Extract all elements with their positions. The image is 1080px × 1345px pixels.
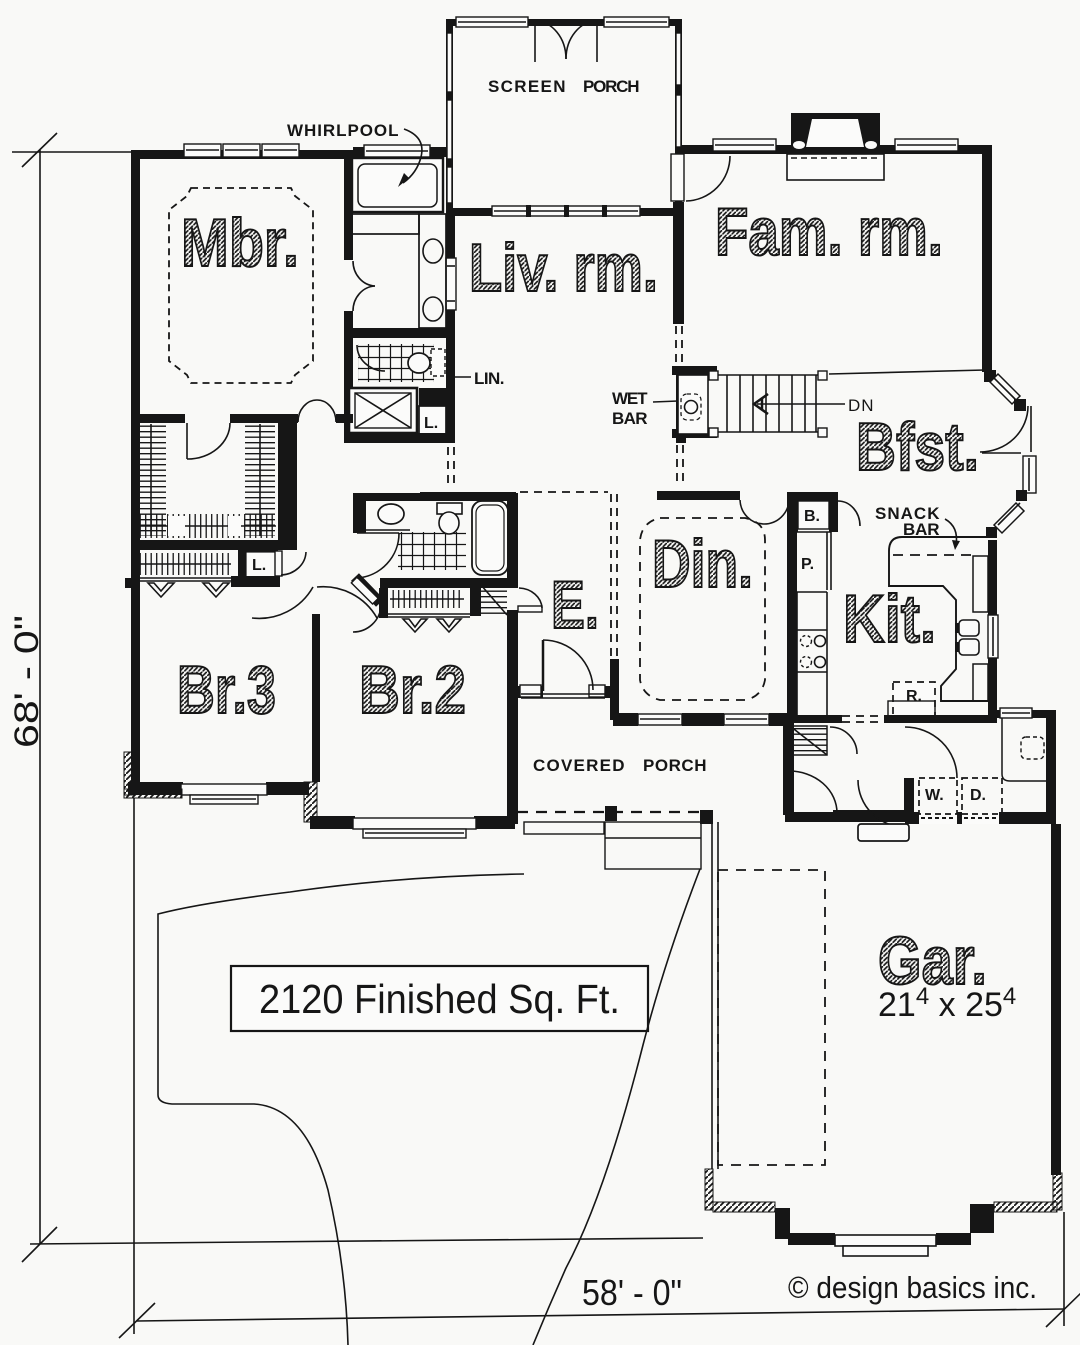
svg-text:Br.3: Br.3 [177,652,276,728]
svg-text:E.: E. [551,567,599,643]
svg-text:WET: WET [612,389,650,408]
svg-text:Liv. rm.: Liv. rm. [469,230,658,306]
svg-text:W.: W. [925,787,944,804]
svg-text:D.: D. [970,787,986,804]
svg-text:68' - 0": 68' - 0" [8,615,46,748]
svg-text:LIN.: LIN. [474,369,507,388]
svg-text:Mbr.: Mbr. [181,205,299,281]
svg-text:Fam. rm.: Fam. rm. [715,194,943,270]
svg-text:P.: P. [801,556,814,573]
svg-text:2120 Finished Sq. Ft.: 2120 Finished Sq. Ft. [259,976,620,1022]
svg-text:Kit.: Kit. [843,581,936,657]
svg-text:L.: L. [252,557,266,574]
svg-text:COVERED: COVERED [533,756,627,775]
svg-text:Gar.: Gar. [878,923,987,999]
svg-text:B.: B. [804,508,820,525]
svg-text:© design basics inc.: © design basics inc. [788,1270,1037,1305]
svg-text:PORCH: PORCH [583,77,642,96]
svg-text:R.: R. [906,688,922,705]
svg-text:WHIRLPOOL: WHIRLPOOL [287,121,401,140]
svg-text:Bfst.: Bfst. [856,409,979,485]
svg-text:58' - 0": 58' - 0" [582,1272,682,1313]
svg-text:SCREEN: SCREEN [488,77,568,96]
svg-text:PORCH: PORCH [643,756,709,775]
svg-text:L.: L. [424,415,438,432]
svg-text:Br.2: Br.2 [359,652,466,728]
svg-text:BAR: BAR [903,520,942,539]
svg-text:Din.: Din. [652,526,753,602]
svg-text:BAR: BAR [612,409,650,428]
